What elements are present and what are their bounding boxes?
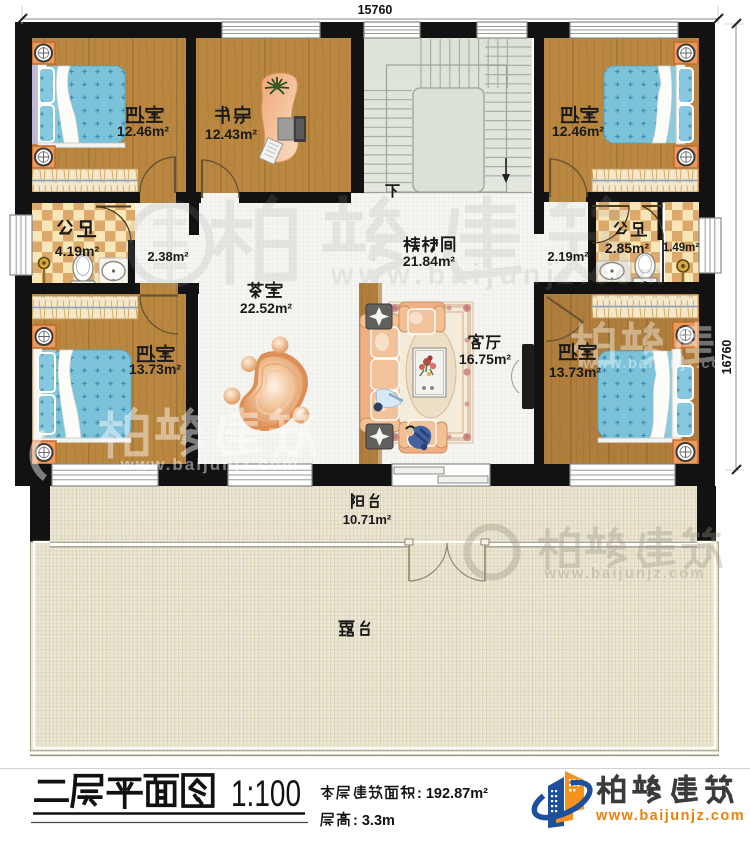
svg-text:www.baijunjz.com: www.baijunjz.com [595,808,745,824]
svg-text:1.49m²: 1.49m² [663,242,700,254]
svg-text:1:100: 1:100 [231,773,301,814]
svg-text:22.52m²: 22.52m² [240,300,292,316]
svg-text:13.73m²: 13.73m² [129,361,181,377]
svg-text:21.84m²: 21.84m² [403,253,455,269]
svg-text:2.38m²: 2.38m² [147,249,189,264]
svg-text:: 3.3m: : 3.3m [353,813,395,829]
svg-text:12.43m²: 12.43m² [205,126,257,142]
svg-text:2.19m²: 2.19m² [547,249,589,264]
svg-text:www.baijunjz.com: www.baijunjz.com [330,259,669,291]
svg-text:4.19m²: 4.19m² [55,243,100,259]
svg-text:12.46m²: 12.46m² [552,123,604,139]
svg-text:15760: 15760 [358,3,393,17]
svg-text:10.71m²: 10.71m² [343,512,392,527]
svg-text:16.75m²: 16.75m² [459,351,511,367]
svg-text:www.baijunjz.com: www.baijunjz.com [543,565,705,582]
svg-text:16760: 16760 [720,340,734,375]
svg-text:: 192.87m²: : 192.87m² [417,786,488,802]
svg-text:13.73m²: 13.73m² [549,364,601,380]
svg-text:www.baijunjz.com: www.baijunjz.com [120,455,300,474]
svg-text:12.46m²: 12.46m² [117,123,169,139]
svg-text:2.85m²: 2.85m² [605,240,650,256]
svg-text:www.baijunjz.com: www.baijunjz.com [582,355,736,372]
